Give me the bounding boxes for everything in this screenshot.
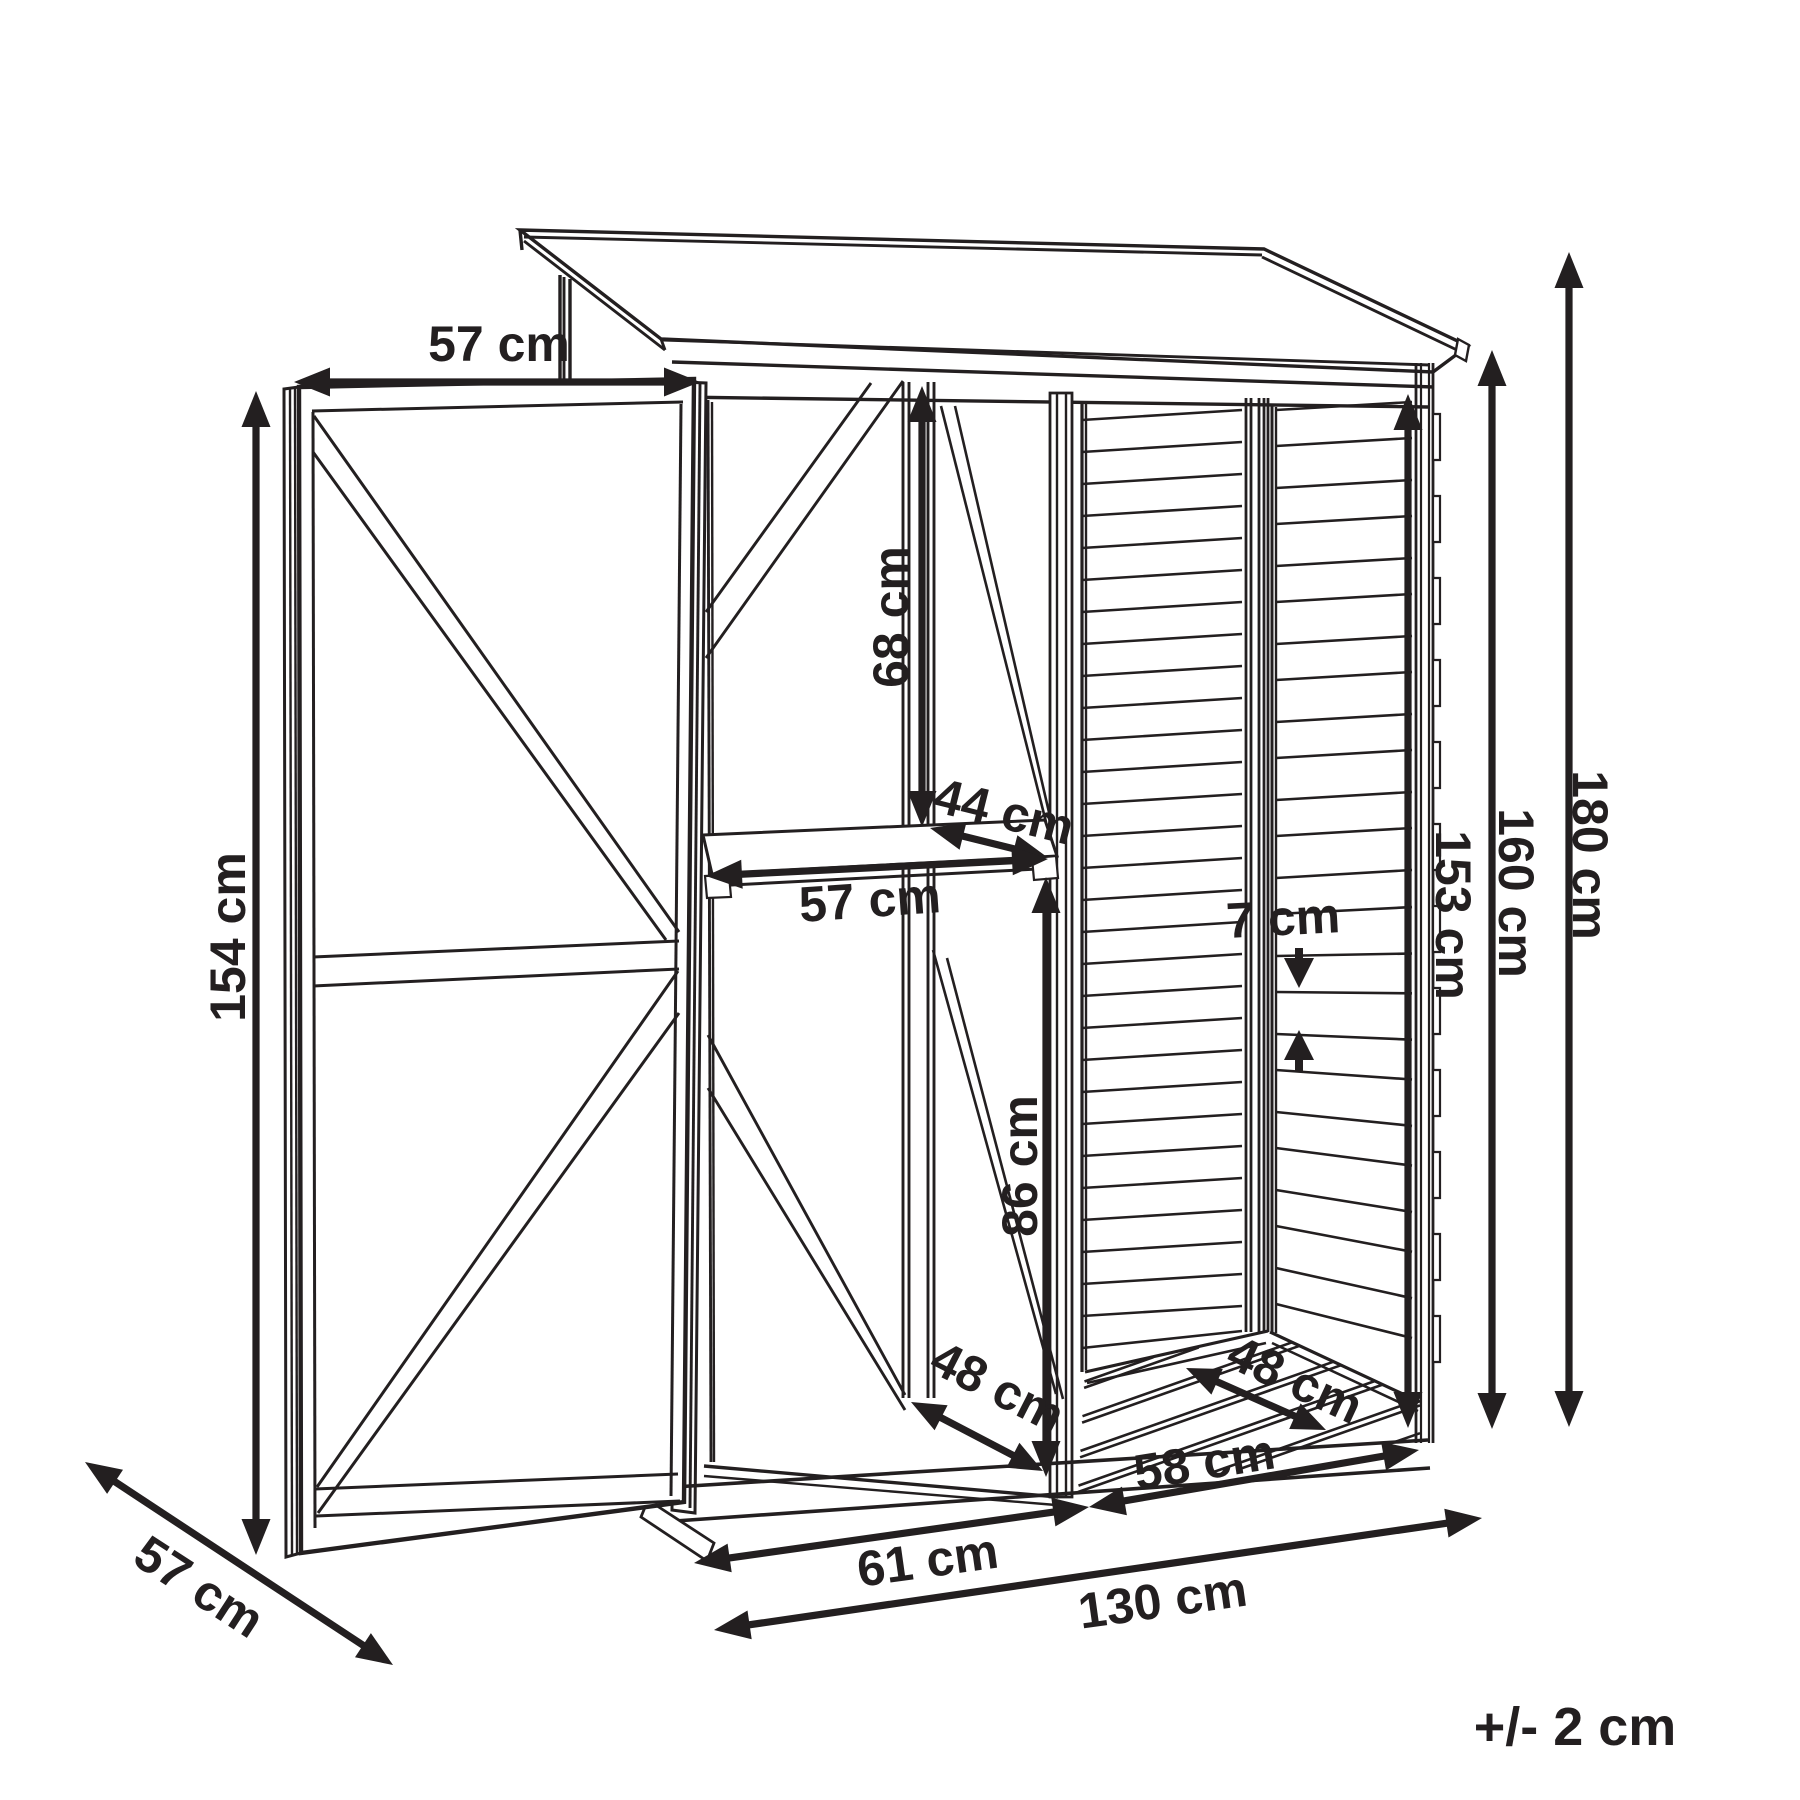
svg-text:57 cm: 57 cm: [428, 316, 570, 372]
svg-text:7 cm: 7 cm: [1225, 887, 1342, 949]
svg-text:154 cm: 154 cm: [200, 852, 256, 1022]
svg-text:160 cm: 160 cm: [1488, 808, 1544, 978]
svg-text:180 cm: 180 cm: [1562, 770, 1618, 940]
svg-text:57 cm: 57 cm: [797, 867, 942, 933]
svg-text:+/- 2 cm: +/- 2 cm: [1474, 1697, 1677, 1757]
svg-text:153 cm: 153 cm: [1425, 830, 1481, 1000]
svg-text:86 cm: 86 cm: [992, 1095, 1048, 1237]
svg-text:68 cm: 68 cm: [863, 546, 919, 688]
